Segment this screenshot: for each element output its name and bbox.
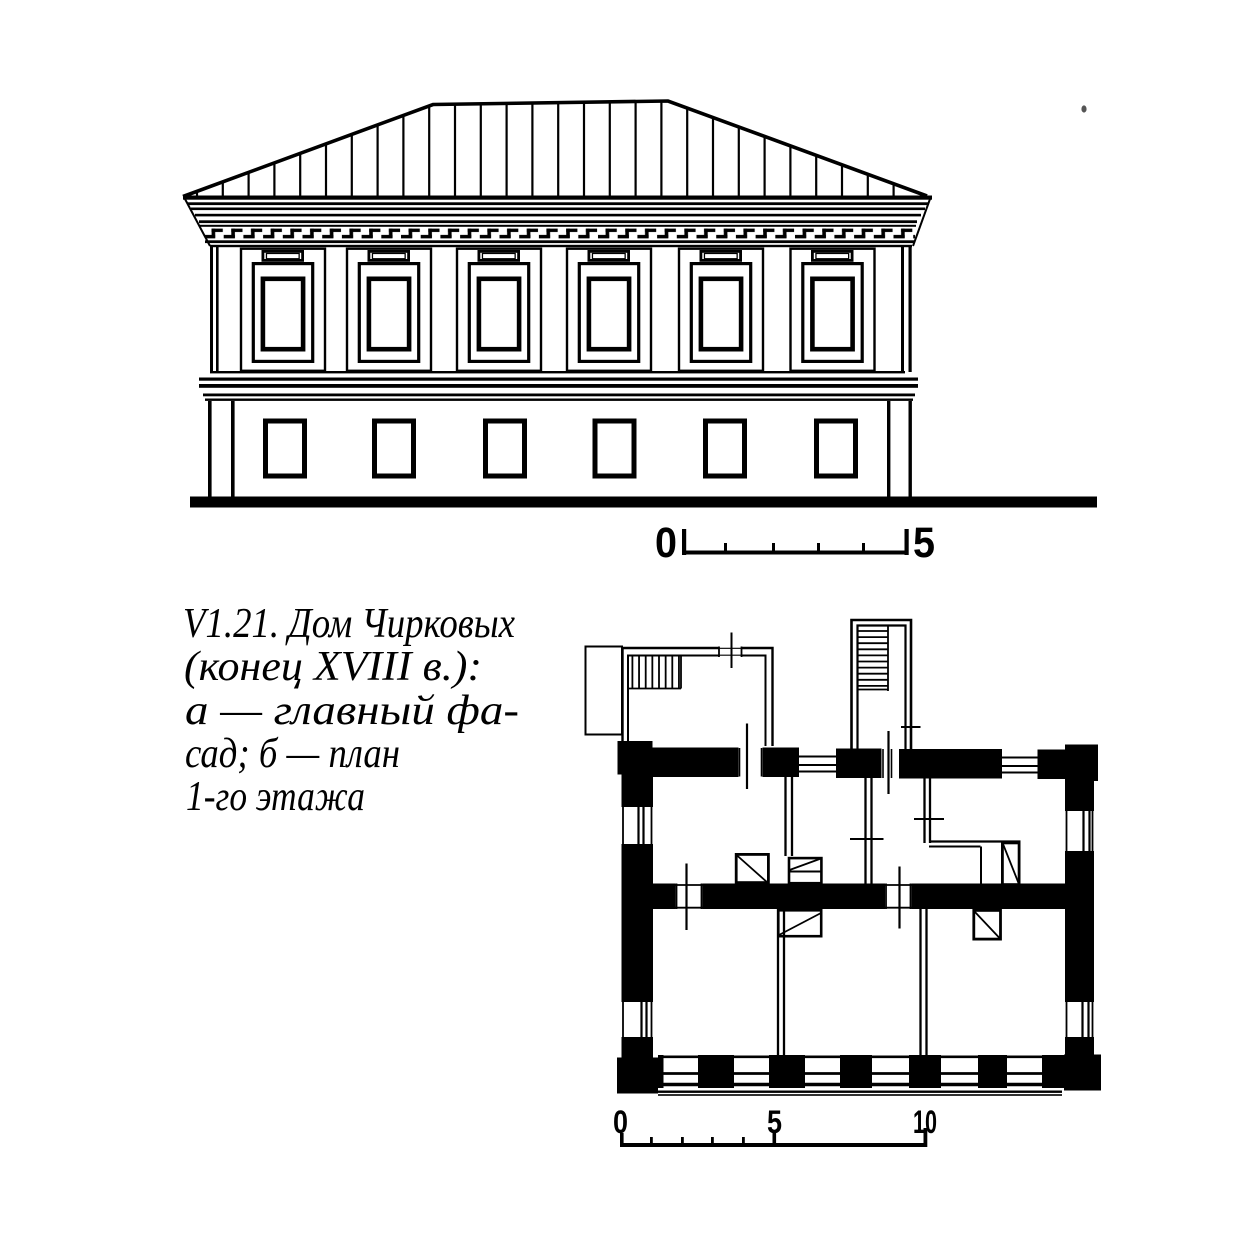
svg-text:0: 0 [655,519,677,567]
svg-text:5: 5 [913,519,935,567]
svg-text:сад; б — план: сад; б — план [185,731,400,777]
svg-text:1-го этажа: 1-го этажа [186,774,365,820]
svg-text:(конец XVIII в.):: (конец XVIII в.): [184,644,482,690]
svg-text:V1.21. Дом Чирковых: V1.21. Дом Чирковых [183,601,515,647]
svg-text:а — главный фа-: а — главный фа- [185,688,519,734]
